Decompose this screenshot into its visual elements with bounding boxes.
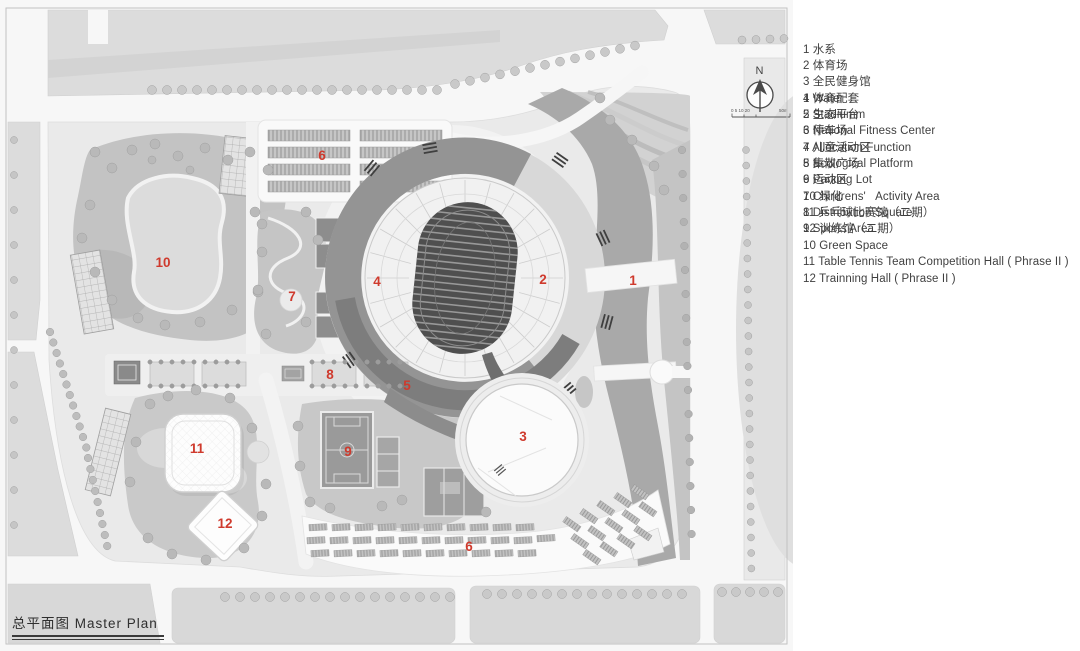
tree xyxy=(236,360,240,364)
tree xyxy=(296,593,305,602)
tree xyxy=(87,465,95,473)
tree xyxy=(305,497,315,507)
tree xyxy=(747,472,754,479)
tree xyxy=(678,590,687,599)
master-plan-page: N 0 5 10 20 50m 1067421859311126 总平面图 Ma… xyxy=(0,0,1080,651)
legend-item-en: 8 Distribution Square xyxy=(803,205,1080,221)
tree xyxy=(343,384,347,388)
tree xyxy=(682,314,690,322)
tree xyxy=(528,590,537,599)
tree xyxy=(401,593,410,602)
tree xyxy=(178,86,187,95)
tree xyxy=(431,593,440,602)
title-underline xyxy=(12,635,164,637)
tree xyxy=(238,86,247,95)
tree xyxy=(163,86,172,95)
tree xyxy=(687,506,695,514)
tree xyxy=(747,488,754,495)
tree xyxy=(446,593,455,602)
legend-item-zh: 1 水系 xyxy=(803,42,1080,58)
tree xyxy=(127,145,137,155)
plan-marker-2: 2 xyxy=(539,272,547,287)
tree xyxy=(403,86,412,95)
tree xyxy=(221,593,230,602)
tree xyxy=(760,588,769,597)
tree xyxy=(747,519,754,526)
tree xyxy=(387,384,391,388)
tree xyxy=(451,80,460,89)
tree xyxy=(223,86,232,95)
tree xyxy=(397,495,407,505)
plan-marker-12: 12 xyxy=(217,516,232,531)
tree xyxy=(616,44,625,53)
plan-title-block: 总平面图 Master Plan xyxy=(12,612,164,640)
tree xyxy=(398,360,402,364)
tree xyxy=(774,588,783,597)
tree xyxy=(261,329,271,339)
tree xyxy=(170,384,174,388)
tree xyxy=(746,426,753,433)
tree xyxy=(236,593,245,602)
plan-marker-1: 1 xyxy=(629,273,637,288)
tree xyxy=(268,86,277,95)
tree xyxy=(225,384,229,388)
title-underline xyxy=(12,639,164,641)
table-tennis-hall-11 xyxy=(165,414,244,496)
tree xyxy=(365,360,369,364)
tree xyxy=(257,219,267,229)
site-plan: N 0 5 10 20 50m 1067421859311126 总平面图 Ma… xyxy=(0,0,793,651)
plan-marker-6: 6 xyxy=(465,539,473,554)
tree xyxy=(239,543,249,553)
tree xyxy=(313,86,322,95)
tree xyxy=(686,458,694,466)
tree xyxy=(11,312,18,319)
tree xyxy=(605,115,615,125)
tree xyxy=(746,441,753,448)
tree xyxy=(571,54,580,63)
legend-item-en: 12 Trainning Hall ( Phrase II ) xyxy=(803,271,1080,287)
tree xyxy=(418,86,427,95)
tree xyxy=(73,412,81,420)
tree xyxy=(107,295,117,305)
tree xyxy=(513,590,522,599)
plan-marker-6: 6 xyxy=(318,148,326,163)
tree xyxy=(586,51,595,60)
tree xyxy=(744,286,751,293)
tree xyxy=(298,86,307,95)
tree xyxy=(310,384,314,388)
tree xyxy=(195,317,205,327)
tree xyxy=(94,498,102,506)
tree xyxy=(343,86,352,95)
tree xyxy=(511,67,520,76)
tree xyxy=(743,162,750,169)
plan-marker-10: 10 xyxy=(155,255,170,270)
tree xyxy=(743,193,750,200)
tree xyxy=(744,271,751,278)
tree xyxy=(131,437,141,447)
tree xyxy=(192,360,196,364)
tree xyxy=(745,364,752,371)
tree xyxy=(227,305,237,315)
tree xyxy=(718,588,727,597)
tree xyxy=(203,384,207,388)
tree xyxy=(649,161,659,171)
plan-marker-7: 7 xyxy=(288,289,296,304)
tree xyxy=(11,452,18,459)
tree xyxy=(266,593,275,602)
tree xyxy=(11,137,18,144)
tree xyxy=(11,207,18,214)
tree xyxy=(191,385,201,395)
tree xyxy=(682,290,690,298)
tree xyxy=(746,410,753,417)
tree xyxy=(148,86,157,95)
tree xyxy=(11,417,18,424)
tree xyxy=(743,209,750,216)
tree xyxy=(354,360,358,364)
tree xyxy=(541,60,550,69)
tree xyxy=(250,207,260,217)
tree xyxy=(223,155,233,165)
tree xyxy=(261,479,271,489)
roundabout xyxy=(650,360,674,384)
tree xyxy=(69,402,77,410)
tree xyxy=(744,224,751,231)
tree xyxy=(50,339,58,347)
tree xyxy=(648,590,657,599)
tree xyxy=(483,590,492,599)
tree xyxy=(687,482,695,490)
tree xyxy=(321,360,325,364)
tree xyxy=(732,588,741,597)
tree xyxy=(328,86,337,95)
tree xyxy=(752,36,760,44)
tree xyxy=(90,147,100,157)
tree xyxy=(325,503,335,513)
tree xyxy=(685,434,693,442)
tree xyxy=(311,593,320,602)
tree xyxy=(181,384,185,388)
tree xyxy=(387,360,391,364)
tree xyxy=(543,590,552,599)
block-top-road-gap xyxy=(88,10,108,44)
tree xyxy=(63,381,71,389)
scale-ticks: 0 5 10 20 xyxy=(731,108,750,113)
tree xyxy=(663,590,672,599)
tree xyxy=(365,384,369,388)
tree xyxy=(496,70,505,79)
tree xyxy=(167,549,177,559)
tree xyxy=(263,165,273,175)
tree xyxy=(163,391,173,401)
tree xyxy=(747,503,754,510)
tree xyxy=(159,360,163,364)
tree xyxy=(633,590,642,599)
round-plaza xyxy=(247,441,269,463)
tree xyxy=(321,384,325,388)
tree xyxy=(214,360,218,364)
legend-item-en: 4 Allocation Function xyxy=(803,140,1080,156)
tree xyxy=(160,320,170,330)
tree xyxy=(11,522,18,529)
north-label: N xyxy=(756,65,765,77)
tree xyxy=(685,410,693,418)
tree xyxy=(745,317,752,324)
tree xyxy=(588,590,597,599)
tree xyxy=(11,487,18,494)
tree xyxy=(193,86,202,95)
tree xyxy=(343,360,347,364)
tree xyxy=(659,185,669,195)
tree xyxy=(748,565,755,572)
tree xyxy=(295,461,305,471)
tree xyxy=(186,166,194,174)
tree xyxy=(46,328,54,336)
legend-item-en: 11 Table Tennis Team Competition Hall ( … xyxy=(803,254,1080,270)
tree xyxy=(603,590,612,599)
tree xyxy=(150,139,160,149)
courts-east xyxy=(377,437,399,487)
tree xyxy=(416,593,425,602)
tree xyxy=(201,555,211,565)
tree xyxy=(247,423,257,433)
tree xyxy=(618,590,627,599)
tree xyxy=(481,73,490,82)
tree xyxy=(679,170,687,178)
tree xyxy=(683,338,691,346)
tree xyxy=(573,590,582,599)
tree xyxy=(91,487,99,495)
tree xyxy=(253,285,263,295)
tree xyxy=(746,395,753,402)
tree xyxy=(159,384,163,388)
tree xyxy=(388,86,397,95)
legend-item-en: 2 Stadiumm xyxy=(803,107,1080,123)
tree xyxy=(558,590,567,599)
tree xyxy=(376,384,380,388)
tree xyxy=(373,86,382,95)
tree xyxy=(173,151,183,161)
tree xyxy=(746,379,753,386)
tree xyxy=(148,156,156,164)
tree xyxy=(684,386,692,394)
tree xyxy=(251,593,260,602)
tree xyxy=(125,477,135,487)
tree xyxy=(371,593,380,602)
tree xyxy=(76,423,84,431)
tree xyxy=(107,163,117,173)
tree xyxy=(99,520,107,528)
plan-marker-11: 11 xyxy=(190,441,205,456)
plan-marker-3: 3 xyxy=(519,429,527,444)
plan-marker-5: 5 xyxy=(403,378,411,393)
tree xyxy=(11,347,18,354)
tree xyxy=(743,178,750,185)
tree xyxy=(526,64,535,73)
tree xyxy=(745,302,752,309)
tree xyxy=(301,207,311,217)
tree xyxy=(214,384,218,388)
plan-marker-8: 8 xyxy=(326,367,334,382)
tree xyxy=(498,590,507,599)
tree xyxy=(766,35,774,43)
pond xyxy=(127,176,224,312)
tree xyxy=(89,476,97,484)
tree xyxy=(601,48,610,57)
tree xyxy=(96,509,104,517)
tree xyxy=(170,360,174,364)
tree xyxy=(745,333,752,340)
tree xyxy=(746,588,755,597)
tree xyxy=(679,194,687,202)
tree xyxy=(56,360,64,368)
tree xyxy=(225,393,235,403)
legend-item-en: 6 Parking Lot xyxy=(803,172,1080,188)
tree xyxy=(398,384,402,388)
tree xyxy=(326,593,335,602)
tree xyxy=(133,313,143,323)
tree xyxy=(101,531,109,539)
legend-item-en: 7 Chirdrens' Activity Area xyxy=(803,189,1080,205)
tree xyxy=(208,86,217,95)
tree xyxy=(59,370,67,378)
tree xyxy=(556,57,565,66)
block-left-upper xyxy=(8,122,40,340)
tree xyxy=(257,247,267,257)
tree xyxy=(433,86,442,95)
plan-marker-4: 4 xyxy=(373,274,381,289)
tree xyxy=(332,384,336,388)
tree xyxy=(293,421,303,431)
tree xyxy=(354,384,358,388)
legend-zh-list: 1 水系2 体育场3 全民健身馆4 体育配套5 生态平台6 停车场7 儿童活动区… xyxy=(803,42,1080,58)
tree xyxy=(341,593,350,602)
tree xyxy=(203,360,207,364)
tree xyxy=(744,240,751,247)
tree xyxy=(236,384,240,388)
tree xyxy=(481,507,491,517)
tree xyxy=(310,360,314,364)
tree xyxy=(283,86,292,95)
tree xyxy=(358,86,367,95)
tree xyxy=(743,147,750,154)
tree xyxy=(313,235,323,245)
tree xyxy=(11,277,18,284)
tree xyxy=(85,200,95,210)
tree xyxy=(257,511,267,521)
tree xyxy=(747,457,754,464)
plan-marker-9: 9 xyxy=(344,444,352,459)
tree xyxy=(79,433,87,441)
tree xyxy=(684,362,692,370)
tree xyxy=(631,41,640,50)
tree xyxy=(681,242,689,250)
plan-title-text: 总平面图 Master Plan xyxy=(12,612,164,632)
legend-item-en: 10 Green Space xyxy=(803,238,1080,254)
tree xyxy=(748,534,755,541)
tree xyxy=(200,143,210,153)
tree xyxy=(53,349,61,357)
tree xyxy=(103,542,111,550)
tree xyxy=(680,218,688,226)
tree xyxy=(377,501,387,511)
tree xyxy=(148,360,152,364)
tree xyxy=(253,86,262,95)
tree xyxy=(181,360,185,364)
tree xyxy=(11,172,18,179)
tree xyxy=(332,360,336,364)
tree xyxy=(745,348,752,355)
tree xyxy=(627,135,637,145)
tree xyxy=(356,593,365,602)
tree xyxy=(738,36,746,44)
legend-item-en: 5 Ecological Platform xyxy=(803,156,1080,172)
tree xyxy=(83,444,91,452)
tree xyxy=(281,593,290,602)
tree xyxy=(595,93,605,103)
tree xyxy=(66,391,74,399)
tree xyxy=(225,360,229,364)
tree xyxy=(681,266,689,274)
legend-item-en: 3 National Fitness Center xyxy=(803,123,1080,139)
tree xyxy=(748,550,755,557)
legend-panel: 1 水系2 体育场3 全民健身馆4 体育配套5 生态平台6 停车场7 儿童活动区… xyxy=(803,9,1080,140)
tree xyxy=(386,593,395,602)
legend-item-zh: 2 体育场 xyxy=(803,58,1080,74)
tree xyxy=(148,384,152,388)
tree xyxy=(678,146,686,154)
legend-item-en: 9 Sports Area xyxy=(803,221,1080,237)
tree xyxy=(11,382,18,389)
tree xyxy=(11,242,18,249)
tree xyxy=(77,233,87,243)
tree xyxy=(245,147,255,157)
tree xyxy=(466,76,475,85)
tree xyxy=(143,533,153,543)
legend-item-zh: 3 全民健身馆 xyxy=(803,74,1080,90)
tree xyxy=(84,454,92,462)
tree xyxy=(744,255,751,262)
tree xyxy=(301,317,311,327)
master-plan-drawing: N 0 5 10 20 50m 1067421859311126 xyxy=(0,0,793,651)
tree xyxy=(145,399,155,409)
tree xyxy=(376,360,380,364)
tree xyxy=(90,267,100,277)
tree xyxy=(688,530,696,538)
